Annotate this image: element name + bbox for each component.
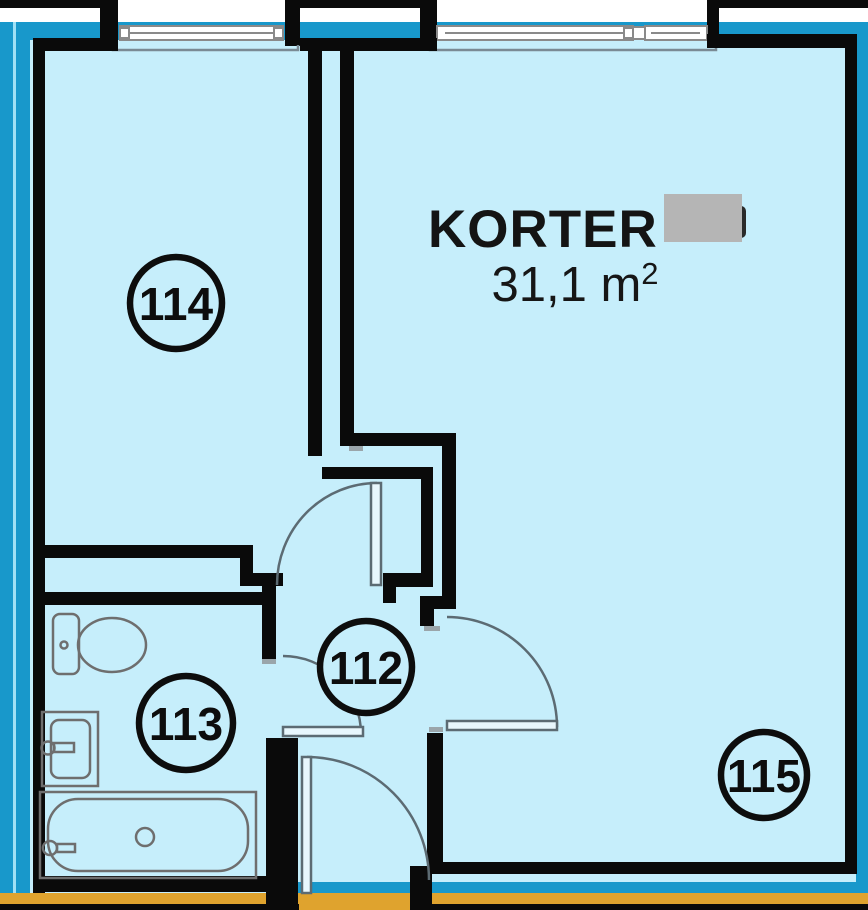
door-leaf [371,483,381,585]
wall-hall-jamb-v [383,573,396,603]
apartment-title: KORTER [428,200,658,259]
hinge-tick-115-top [424,626,440,631]
wall-115-left [340,38,354,445]
bottom-black-line-right [427,904,868,910]
hinge-tick-113 [262,659,276,664]
window-room-114 [120,26,283,40]
bottom-yellow-strip [0,893,868,905]
door-leaf [302,757,311,893]
top-bar-3 [713,0,868,8]
room-number: 114 [139,278,214,330]
window-room-115-a [437,26,633,40]
wall-hall-right [421,467,433,585]
door-leaf [447,721,557,730]
hinge-tick-115-bottom [429,727,443,732]
wall-114-right [308,38,322,456]
bottom-cyan-band [298,882,868,894]
redaction-box [664,194,742,242]
room-number: 112 [329,642,403,694]
wall-115-elbow-v [442,433,456,608]
hinge-tick-hall [349,446,363,451]
wall-bath-right [266,738,298,908]
wall-top-right [707,34,857,48]
bottom-black-line-left [0,904,299,910]
wall-bath-top [33,592,263,605]
window-room-115-b [633,26,707,40]
left-band-gap-line [13,22,16,893]
wall-hall-top [322,467,433,479]
top-bar-2 [285,0,430,8]
wall-115-elbow-h [340,433,456,446]
wall-114-bottom [33,545,253,558]
room-label-115: 115 [721,732,807,818]
right-cyan-band [856,22,868,882]
floor-plan-svg: 114 112 113 115 KORTER 31,1 m2 [0,0,868,910]
room-label-113: 113 [139,676,233,770]
door-leaf [283,727,363,736]
top-stub-2 [285,0,300,46]
wall-bottom-115 [427,862,857,874]
wall-top-left [33,38,118,51]
room-number: 115 [727,750,801,802]
floor-plan: 114 112 113 115 KORTER 31,1 m2 [0,0,868,910]
wall-bath-door-stub [262,573,276,659]
room-label-112: 112 [320,621,412,713]
entrance-threshold [299,893,427,910]
room-number: 113 [149,698,223,750]
wall-entry-right-jamb [427,733,443,868]
apartment-area: 31,1 m2 [491,256,658,312]
wall-right [845,36,857,874]
wall-115-foot-v [420,596,434,626]
